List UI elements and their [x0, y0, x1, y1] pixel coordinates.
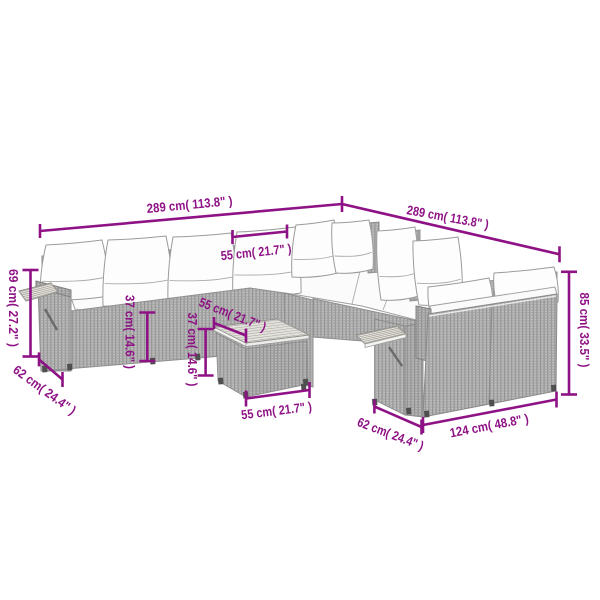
svg-text:85 cm( 33.5" ): 85 cm( 33.5" ) — [577, 293, 592, 368]
svg-text:37 cm( 14.6" ): 37 cm( 14.6" ) — [185, 313, 200, 387]
svg-text:69 cm( 27.2" ): 69 cm( 27.2" ) — [6, 269, 21, 347]
svg-text:37 cm( 14.6" ): 37 cm( 14.6" ) — [122, 295, 137, 369]
